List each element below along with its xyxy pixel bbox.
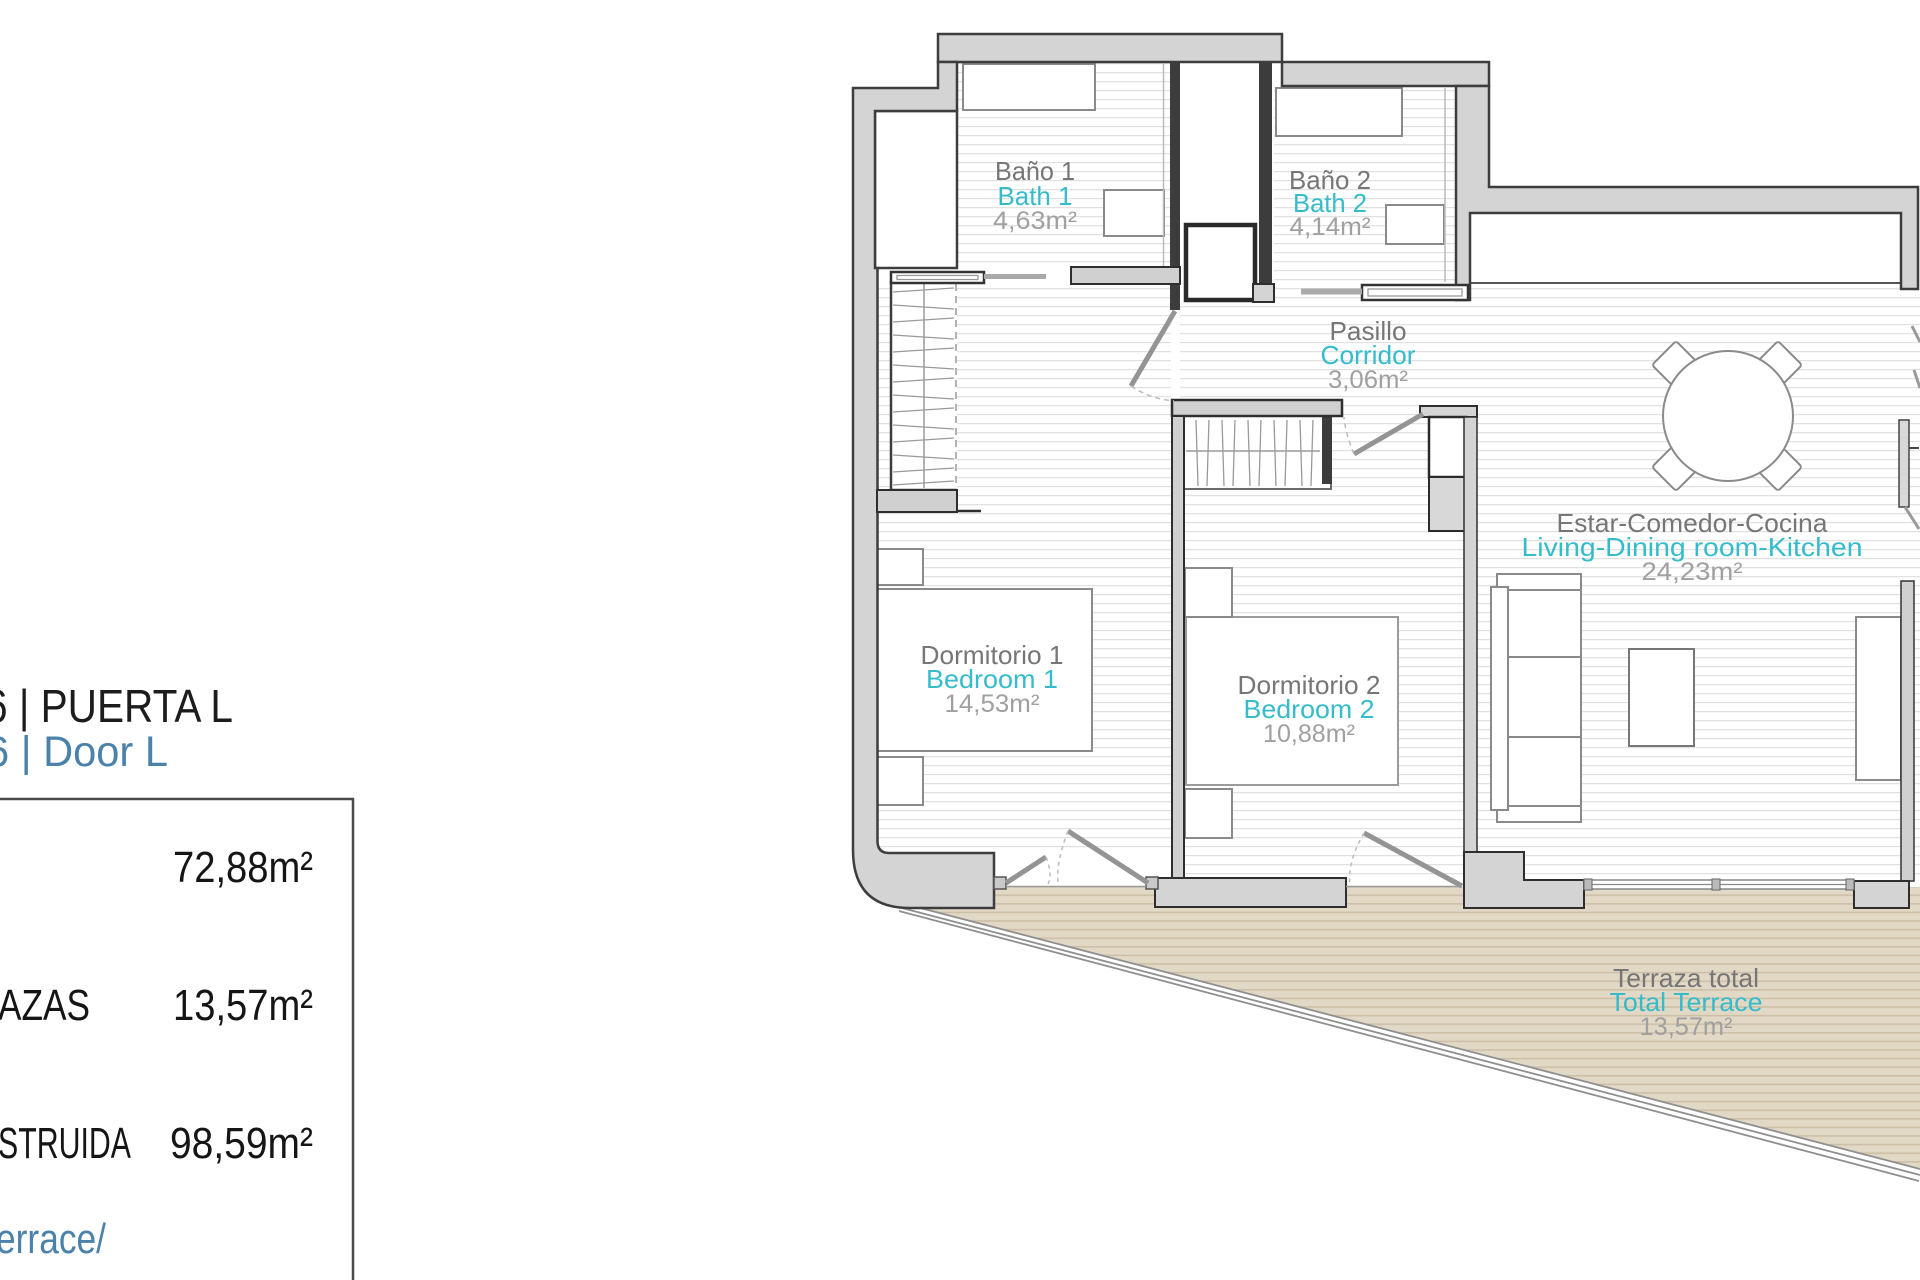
svg-text:72,88m²: 72,88m² (173, 843, 313, 892)
svg-text:13,57m²: 13,57m² (173, 981, 313, 1030)
svg-text:3,06m²: 3,06m² (1328, 366, 1408, 394)
svg-text:AZAS: AZAS (0, 981, 90, 1030)
svg-text:4,14m²: 4,14m² (1290, 213, 1371, 241)
svg-text:24,23m²: 24,23m² (1642, 558, 1743, 586)
svg-text:4,63m²: 4,63m² (993, 207, 1077, 235)
svg-text:13,57m²: 13,57m² (1640, 1013, 1733, 1041)
svg-text:98,59m²: 98,59m² (170, 1119, 313, 1168)
svg-text:6 | PUERTA L: 6 | PUERTA L (0, 680, 233, 732)
svg-text:STRUIDA: STRUIDA (0, 1119, 131, 1168)
svg-text:10,88m²: 10,88m² (1263, 720, 1355, 748)
svg-text:6 | Door L: 6 | Door L (0, 728, 168, 776)
svg-text:errace/: errace/ (0, 1215, 106, 1262)
svg-text:14,53m²: 14,53m² (945, 690, 1040, 718)
